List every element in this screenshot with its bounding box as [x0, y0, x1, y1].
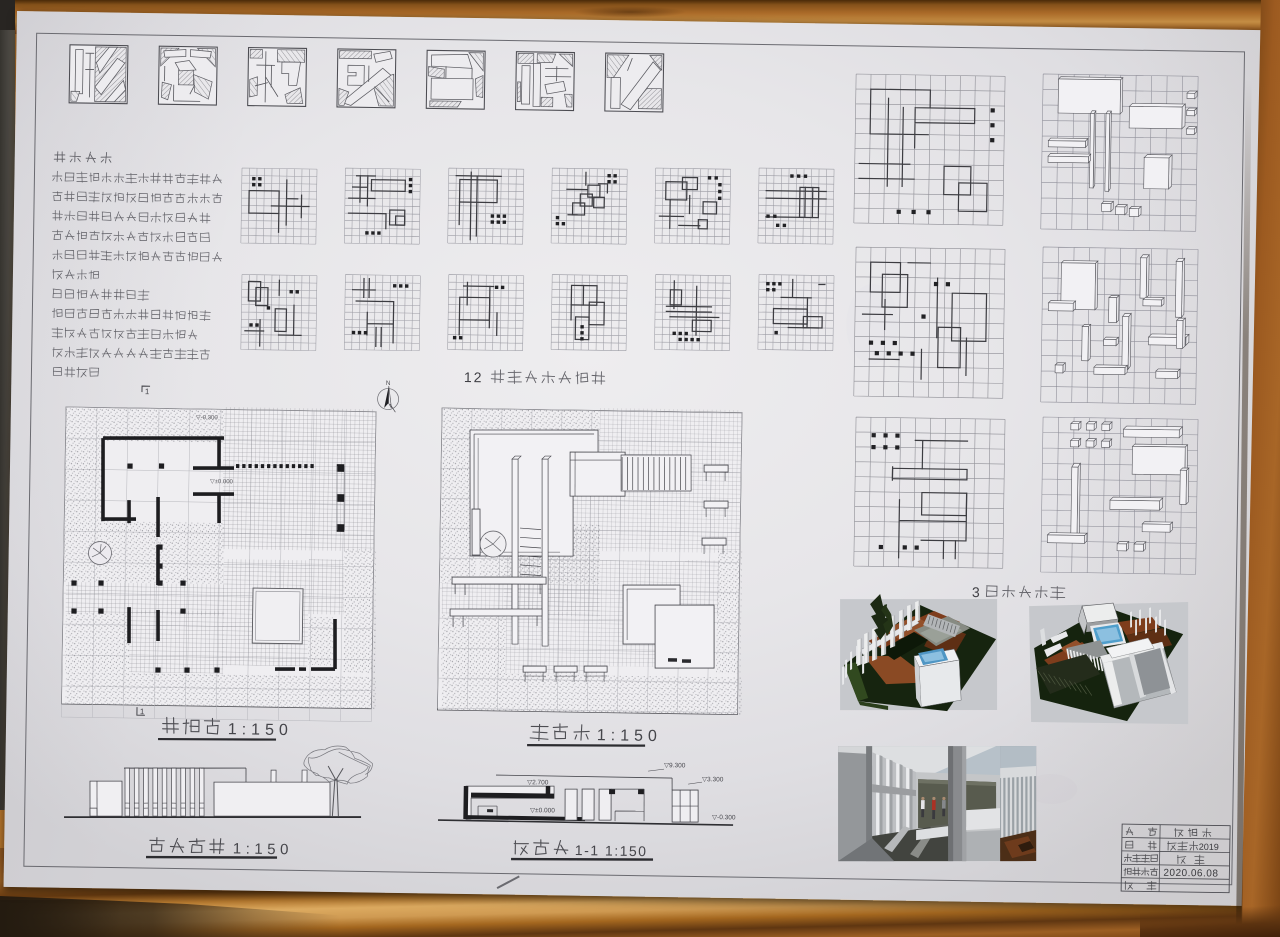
svg-text:1: 1 — [140, 707, 145, 716]
svg-text:1:150: 1:150 — [233, 840, 293, 858]
svg-text:1: 1 — [145, 387, 150, 396]
svg-text:2019: 2019 — [1199, 842, 1219, 852]
svg-text:1-1 1:150: 1-1 1:150 — [575, 842, 648, 859]
svg-text:▽9.300: ▽9.300 — [664, 762, 686, 769]
svg-text:1:150: 1:150 — [228, 721, 293, 739]
svg-text:1:150: 1:150 — [597, 727, 662, 745]
svg-text:N: N — [386, 380, 391, 387]
svg-text:▽2.700: ▽2.700 — [527, 779, 549, 786]
svg-text:▽±0.000: ▽±0.000 — [530, 807, 555, 814]
svg-text:3: 3 — [972, 584, 980, 600]
svg-text:▽-0.300: ▽-0.300 — [712, 814, 736, 821]
svg-text:12: 12 — [464, 369, 484, 385]
svg-text:2020.06.08: 2020.06.08 — [1163, 868, 1218, 880]
svg-text:▽±0.000: ▽±0.000 — [210, 479, 234, 485]
svg-text:▽3.300: ▽3.300 — [702, 776, 724, 783]
svg-text:▽-0.300: ▽-0.300 — [196, 415, 218, 421]
